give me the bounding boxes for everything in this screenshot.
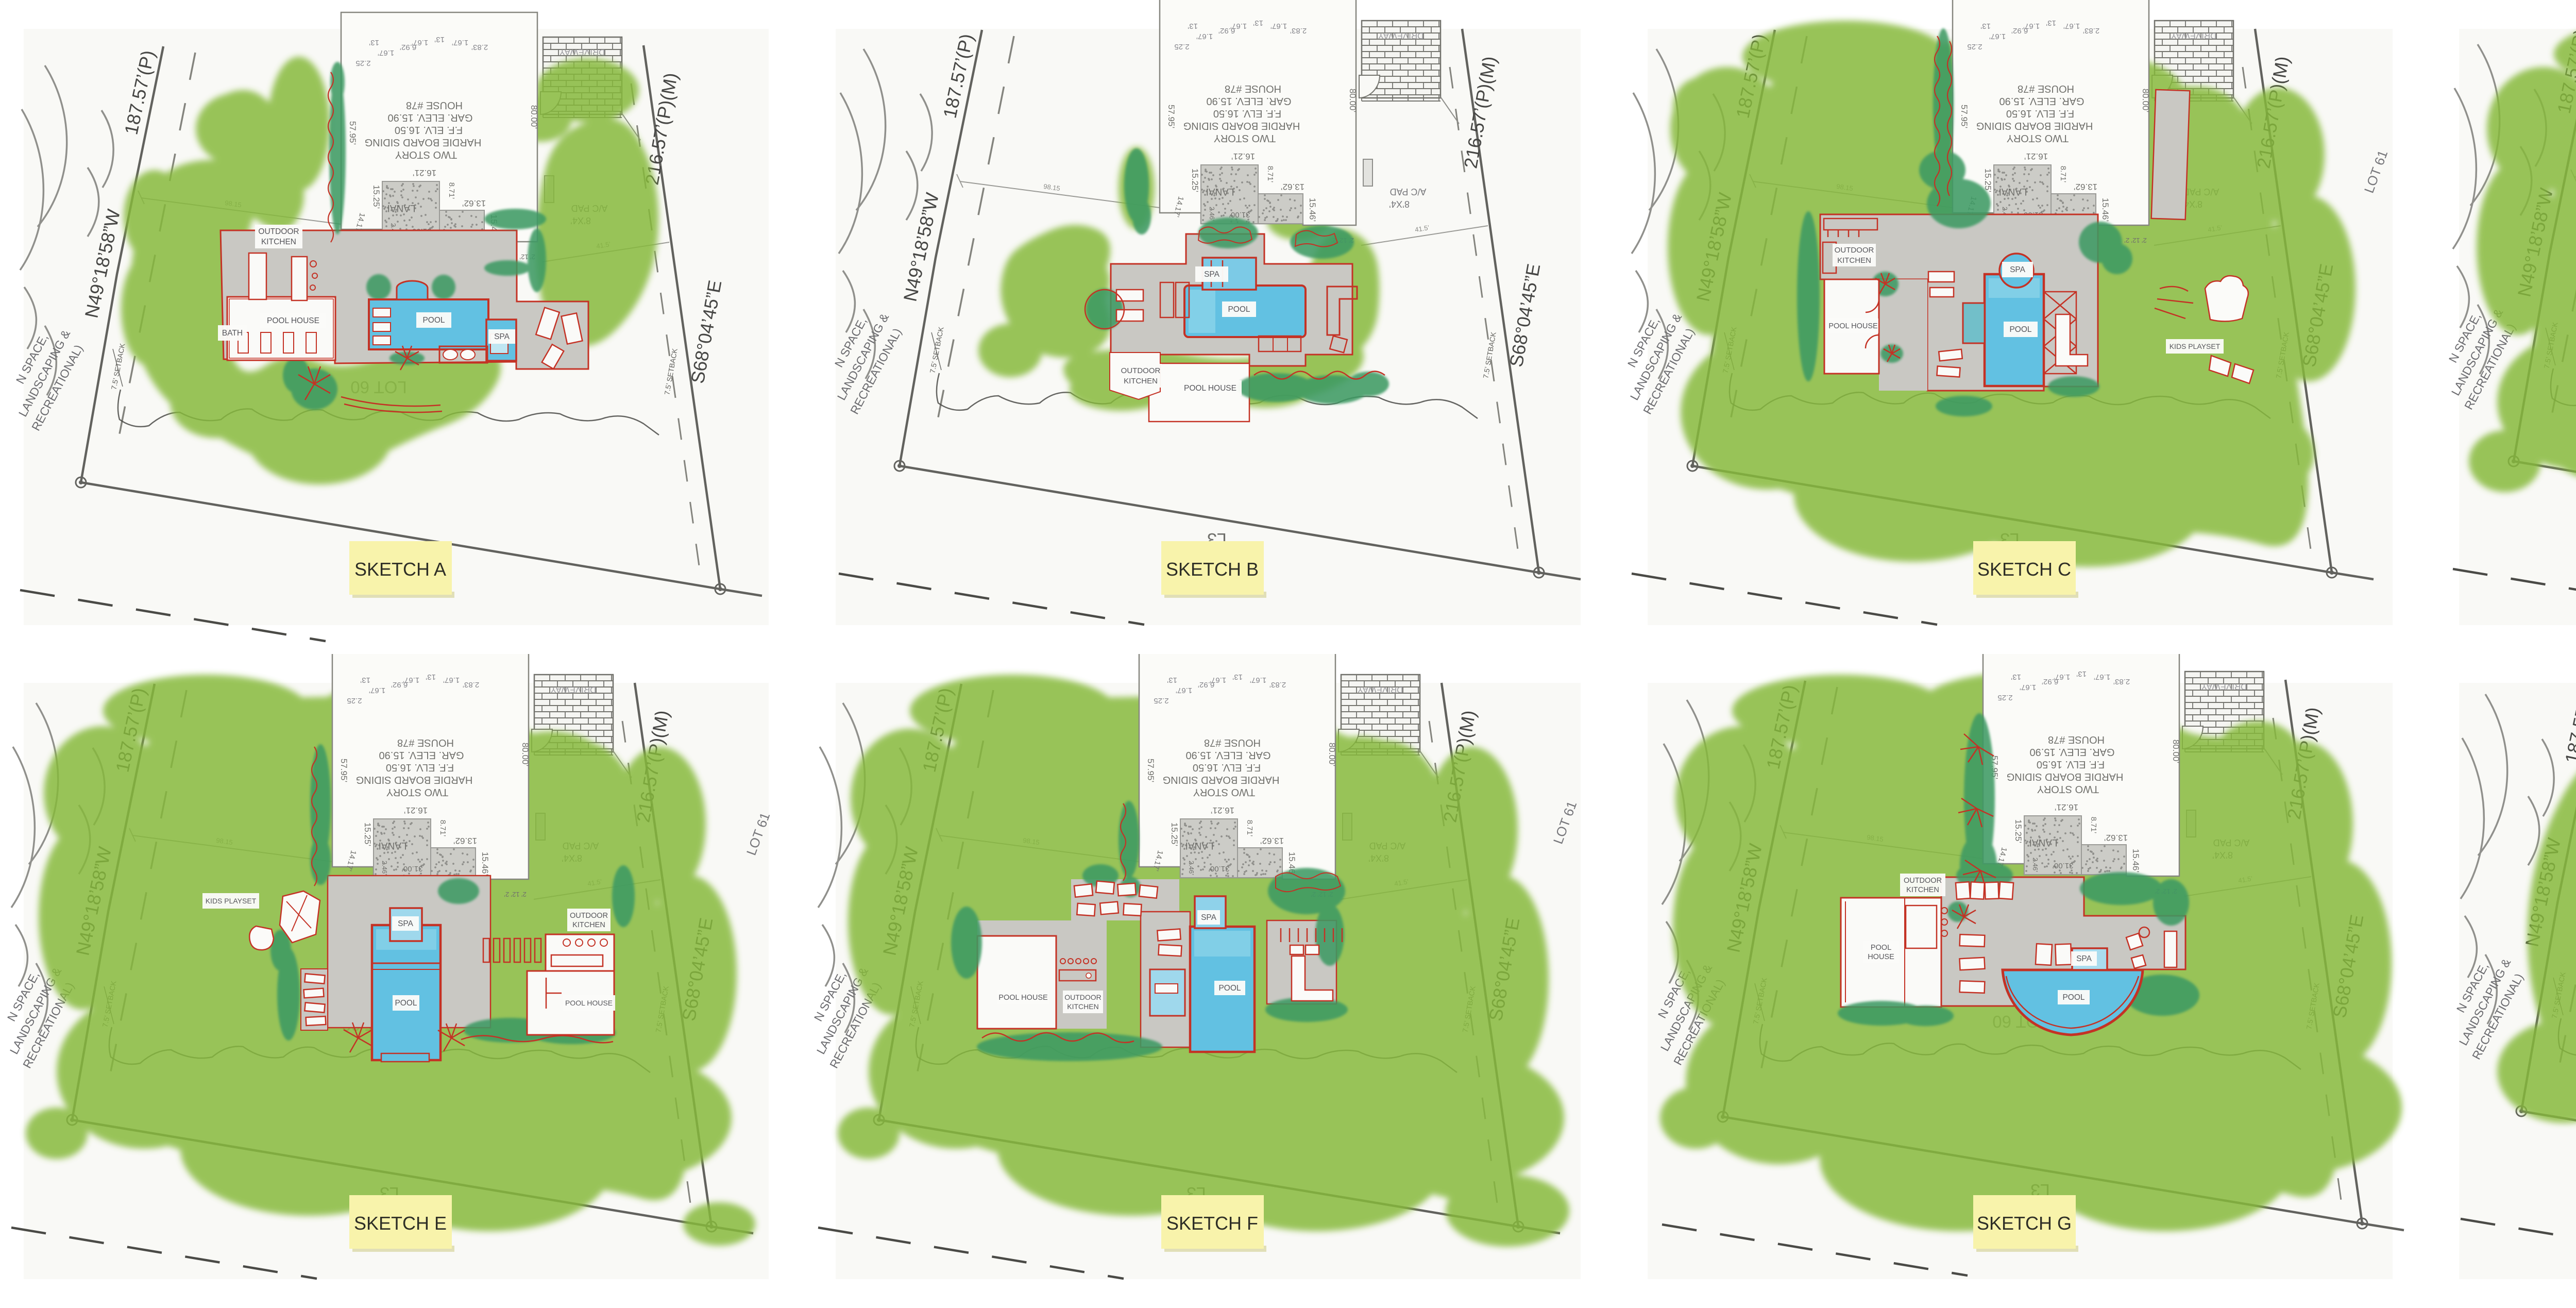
svg-text:SPA: SPA bbox=[398, 919, 414, 928]
svg-text:POOL: POOL bbox=[395, 999, 417, 1008]
svg-text:SPA: SPA bbox=[1204, 270, 1220, 279]
svg-text:OUTDOOR: OUTDOOR bbox=[1121, 366, 1160, 375]
svg-text:POOL: POOL bbox=[1228, 305, 1250, 314]
svg-text:KITCHEN: KITCHEN bbox=[572, 921, 605, 929]
svg-text:KITCHEN: KITCHEN bbox=[1837, 256, 1871, 265]
svg-text:OUTDOOR: OUTDOOR bbox=[1834, 246, 1874, 255]
svg-text:POOL: POOL bbox=[2009, 325, 2031, 334]
svg-text:SPA: SPA bbox=[1201, 913, 1217, 922]
svg-text:KITCHEN: KITCHEN bbox=[1124, 377, 1158, 385]
svg-text:POOL: POOL bbox=[2062, 993, 2084, 1002]
svg-text:KITCHEN: KITCHEN bbox=[261, 238, 296, 246]
svg-text:HOUSE: HOUSE bbox=[1868, 953, 1894, 961]
svg-text:SKETCH E: SKETCH E bbox=[354, 1213, 447, 1234]
svg-text:SKETCH B: SKETCH B bbox=[1166, 559, 1259, 580]
svg-text:SKETCH C: SKETCH C bbox=[1977, 559, 2071, 580]
svg-text:KIDS PLAYSET: KIDS PLAYSET bbox=[206, 897, 257, 905]
svg-text:POOL HOUSE: POOL HOUSE bbox=[267, 316, 319, 325]
svg-text:KITCHEN: KITCHEN bbox=[1067, 1002, 1098, 1011]
svg-text:SKETCH A: SKETCH A bbox=[354, 559, 446, 580]
svg-text:KITCHEN: KITCHEN bbox=[1906, 886, 1939, 894]
svg-text:POOL HOUSE: POOL HOUSE bbox=[1184, 384, 1236, 393]
svg-text:POOL HOUSE: POOL HOUSE bbox=[565, 999, 613, 1007]
svg-text:SPA: SPA bbox=[2010, 265, 2026, 274]
svg-text:BATH: BATH bbox=[222, 329, 243, 338]
svg-text:POOL: POOL bbox=[1218, 984, 1241, 993]
svg-text:POOL HOUSE: POOL HOUSE bbox=[1828, 322, 1878, 330]
svg-text:POOL: POOL bbox=[1870, 944, 1891, 952]
svg-text:SKETCH F: SKETCH F bbox=[1166, 1213, 1258, 1234]
svg-text:OUTDOOR: OUTDOOR bbox=[258, 227, 299, 236]
svg-text:OUTDOOR: OUTDOOR bbox=[570, 912, 608, 920]
svg-text:SKETCH G: SKETCH G bbox=[1976, 1213, 2071, 1234]
svg-text:POOL: POOL bbox=[422, 316, 445, 325]
svg-text:KIDS PLAYSET: KIDS PLAYSET bbox=[2169, 342, 2220, 350]
svg-text:POOL HOUSE: POOL HOUSE bbox=[998, 994, 1048, 1002]
svg-text:SPA: SPA bbox=[494, 332, 510, 341]
svg-text:OUTDOOR: OUTDOOR bbox=[1064, 993, 1101, 1001]
svg-text:SPA: SPA bbox=[2076, 954, 2092, 963]
svg-text:OUTDOOR: OUTDOOR bbox=[1903, 877, 1941, 885]
